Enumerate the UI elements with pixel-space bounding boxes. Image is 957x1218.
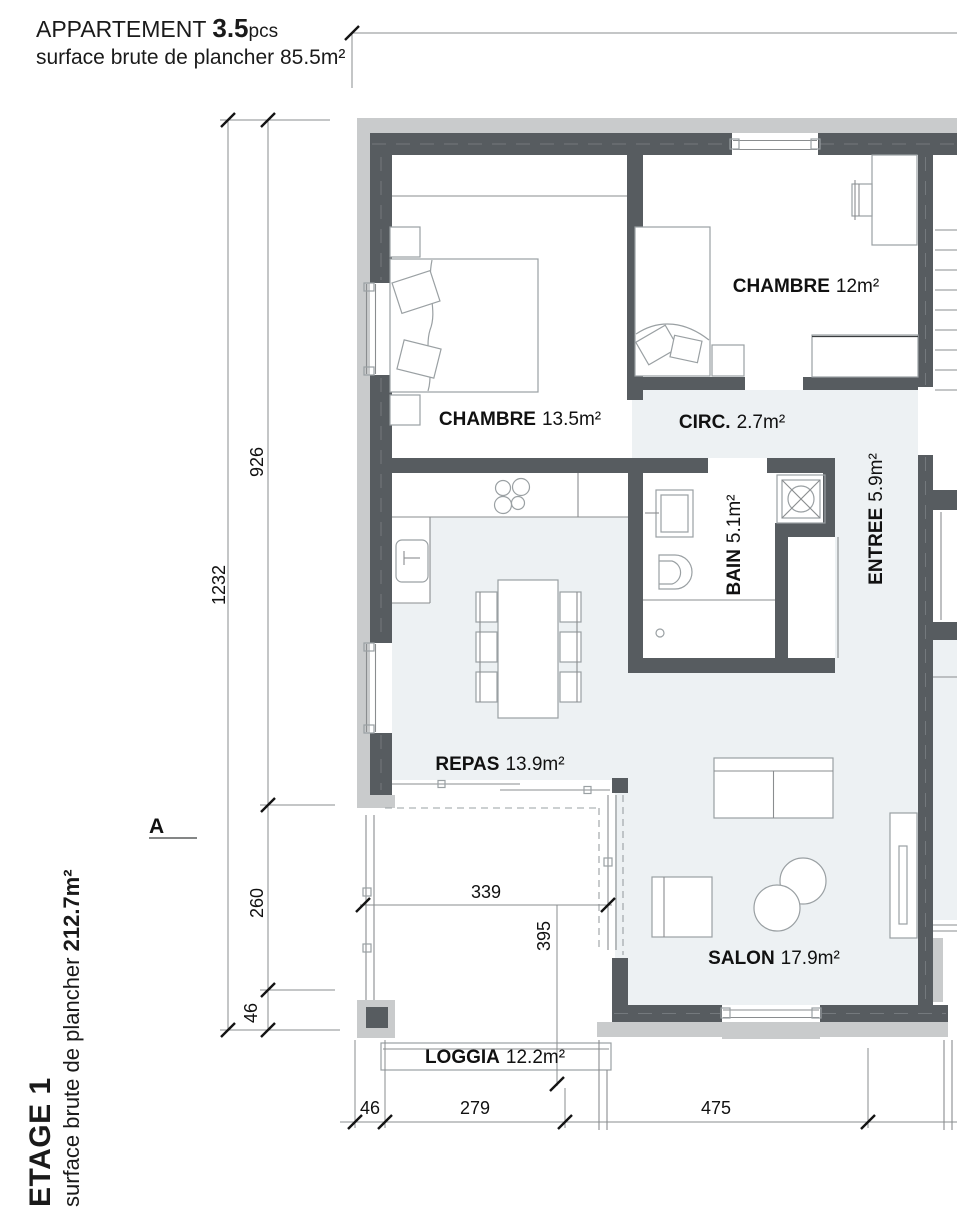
stove-burner [513, 479, 530, 496]
furniture-chambre1 [390, 196, 627, 425]
label-loggia: LOGGIA12.2m² [425, 1047, 565, 1068]
dim-bottom-279: 279 [460, 1098, 490, 1118]
floor-plan-drawing: 1232 926 260 46 46 279 475 339 395 A CHA… [0, 0, 957, 1218]
section-marker-a: A [149, 815, 164, 838]
dining-table [498, 580, 558, 718]
dim-left-total: 1232 [209, 565, 229, 605]
armchair [652, 877, 712, 937]
floorplan-page: APPARTEMENT 3.5pcs surface brute de plan… [0, 0, 957, 1218]
desk [872, 155, 917, 245]
label-chambre1: CHAMBRE13.5m² [439, 409, 601, 430]
label-bain: BAIN5.1m² [724, 494, 745, 595]
dim-loggia-339: 339 [471, 882, 501, 902]
furniture-chambre2 [635, 155, 918, 377]
dim-bottom-475: 475 [701, 1098, 731, 1118]
sideboard [890, 813, 917, 938]
dim-left-260: 260 [247, 888, 267, 918]
stove-burner [495, 497, 512, 514]
kitchen-sink [396, 540, 428, 582]
label-chambre2: CHAMBRE12m² [733, 276, 879, 297]
stove-burner [496, 481, 511, 496]
dim-loggia-395: 395 [534, 921, 554, 951]
stove-burner [512, 497, 525, 510]
dim-left-46: 46 [241, 1003, 261, 1023]
coffee-table [754, 885, 800, 931]
dim-left-926: 926 [247, 447, 267, 477]
dim-bottom-46: 46 [360, 1098, 380, 1118]
floor-drain [656, 629, 664, 637]
label-entree: ENTREE5.9m² [866, 453, 887, 585]
wardrobe [812, 335, 918, 377]
label-salon: SALON17.9m² [708, 948, 840, 969]
